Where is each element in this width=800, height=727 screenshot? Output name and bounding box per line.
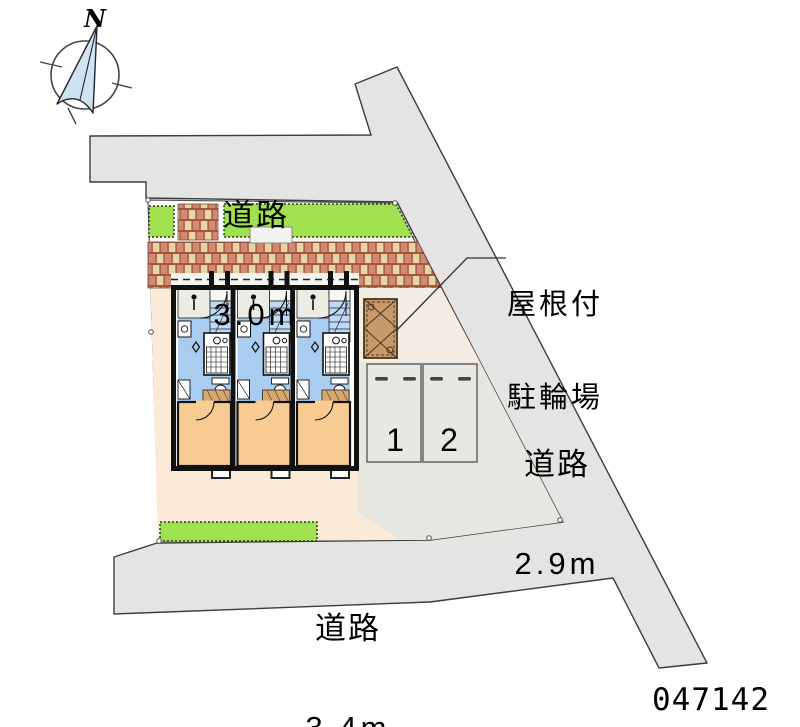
bicycle-shed-label: 屋根付 駐輪場 <box>507 228 603 476</box>
brick-block-top <box>178 204 218 240</box>
road-top-name: 道路 <box>214 199 299 232</box>
bicycle-shed-label-line2: 駐輪場 <box>507 383 603 414</box>
site-plan-drawing <box>0 0 800 727</box>
unit-3 <box>297 271 350 478</box>
road-label-bottom: 道路 3.4m <box>306 546 391 727</box>
road-bottom-name: 道路 <box>306 612 391 645</box>
parking-space-1-number: 1 <box>386 424 404 458</box>
bicycle-shed-label-line1: 屋根付 <box>507 290 603 321</box>
road-top-width: 3.0m <box>214 298 299 331</box>
compass <box>40 26 132 124</box>
site-plan-page: N 道路 3.0m 道路 2.9m 道路 3.4m 屋根付 駐輪場 1 2 04… <box>0 0 800 727</box>
road-bottom-width: 3.4m <box>306 711 391 727</box>
bicycle-shed <box>364 299 397 358</box>
parking-space-2-number: 2 <box>440 424 458 458</box>
north-label: N <box>84 6 106 31</box>
compass-needle <box>57 26 97 113</box>
plan-id: 047142 <box>652 684 770 717</box>
grass-strip-bottom <box>160 522 317 541</box>
grass-strip-top-left <box>149 206 174 237</box>
road-label-top: 道路 3.0m <box>214 133 299 397</box>
road-right-width: 2.9m <box>515 547 600 580</box>
